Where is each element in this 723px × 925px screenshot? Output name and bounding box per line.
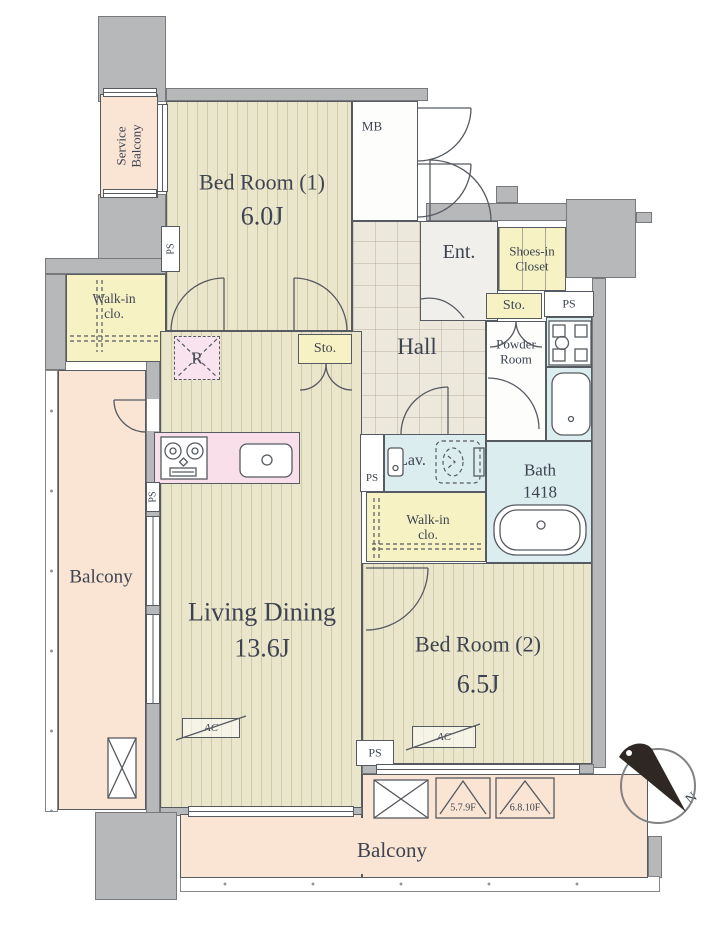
wall-top — [166, 88, 428, 101]
label-bedroom2-size: 6.5J — [457, 669, 500, 698]
label-ac-bedroom2: AC — [437, 731, 451, 743]
wall-walkin-top — [45, 258, 166, 274]
label-bedroom1: Bed Room (1) — [199, 171, 325, 196]
meter-box-doors-icon — [418, 108, 471, 217]
label-walkin1: Walk-in clo. — [92, 291, 135, 321]
living-window-bottom — [188, 806, 354, 817]
wall-porch-bump — [496, 186, 518, 203]
label-ps-lavatory: PS — [366, 472, 378, 484]
label-hall: Hall — [397, 334, 437, 360]
living-window-left-2 — [146, 614, 160, 704]
room-bath — [486, 441, 592, 563]
label-shoes-in-closet: Shoes-in Closet — [509, 244, 555, 273]
label-ps-entrance: PS — [562, 297, 575, 310]
label-ps-top-left: PS — [165, 243, 176, 254]
label-balcony-bottom: Balcony — [357, 839, 427, 863]
label-hatch-floors-b: 6.8.10F — [510, 802, 541, 813]
label-meter-box: MB — [362, 120, 382, 135]
service-balcony-window-top — [103, 88, 157, 97]
label-compass-north: N — [683, 790, 701, 809]
label-walkin2: Walk-in clo. — [406, 512, 449, 542]
living-window-left-1 — [146, 516, 160, 606]
label-storage-entrance: Sto. — [503, 298, 525, 314]
room-bedroom2 — [362, 563, 592, 764]
room-balcony-bottom-left — [180, 814, 362, 878]
label-service-balcony: Service Balcony — [114, 124, 143, 167]
kitchen-counter — [154, 432, 300, 484]
label-refrigerator: R — [191, 348, 202, 367]
label-bath: Bath — [524, 460, 556, 479]
wall-column-bottom-left — [95, 812, 177, 900]
label-powder-room: Powder Room — [496, 337, 536, 366]
label-ps-kitchen-wall: PS — [147, 491, 158, 502]
wall-column-top-right — [566, 199, 636, 278]
label-storage-mid: Sto. — [314, 341, 336, 357]
wall-balcony-right-step — [648, 836, 662, 878]
wall-walkin-left — [45, 274, 66, 370]
balcony-left-railing — [45, 370, 58, 812]
floor-plan: Service Balcony Bed Room (1) 6.0J MB Ent… — [0, 0, 723, 925]
bedroom1-window-left — [157, 104, 168, 192]
washer-space — [546, 317, 592, 367]
label-bedroom1-size: 6.0J — [241, 201, 284, 230]
label-hatch-floors-a: 5.7.9F — [450, 802, 476, 813]
balcony-bottom-railing — [180, 876, 660, 892]
label-ps-bottom: PS — [368, 746, 381, 759]
service-balcony-window-bottom — [103, 189, 157, 198]
basin-space — [546, 367, 592, 441]
label-entrance: Ent. — [443, 241, 476, 263]
wall-right — [592, 278, 606, 768]
label-bedroom2: Bed Room (2) — [415, 633, 541, 658]
label-lavatory: Lav. — [398, 452, 426, 470]
label-living-dining-size: 13.6J — [234, 633, 290, 662]
bedroom2-window-bottom — [376, 764, 580, 775]
label-ac-living: AC — [204, 722, 218, 734]
room-balcony-left — [58, 370, 146, 810]
wall-porch — [426, 203, 568, 221]
label-living-dining: Living Dining — [188, 597, 336, 626]
label-bath-size: 1418 — [523, 482, 557, 501]
wall-tab-top-right — [636, 212, 652, 223]
kitchen-balcony-door-gap — [147, 399, 159, 431]
label-balcony-left: Balcony — [69, 566, 132, 587]
